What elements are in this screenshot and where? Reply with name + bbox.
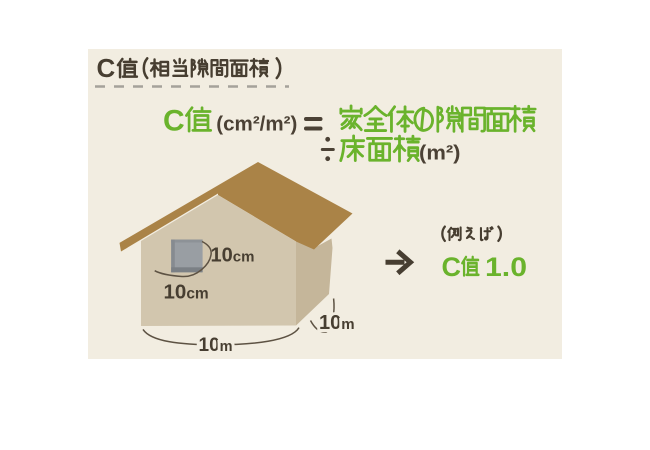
svg-text:10cm: 10cm [211,245,255,267]
svg-text:C: C [97,53,116,83]
svg-text:C: C [163,105,185,138]
svg-text:C: C [442,252,462,282]
svg-text:10m: 10m [319,312,355,334]
svg-text:10m: 10m [199,335,233,356]
svg-text:(m²): (m²) [419,142,461,165]
svg-text:(cm²/m²): (cm²/m²) [216,114,297,136]
svg-text:1.0: 1.0 [485,252,527,282]
